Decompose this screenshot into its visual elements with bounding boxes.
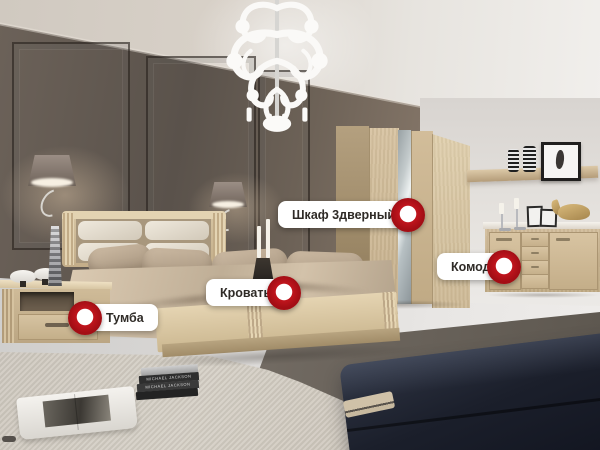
bowl-stand	[42, 279, 48, 285]
hotspot-marker-icon[interactable]	[391, 198, 425, 232]
candlestick	[514, 198, 526, 230]
dresser-handle	[556, 238, 570, 241]
candlestick-base	[514, 227, 526, 230]
floor-object	[2, 436, 16, 442]
art-figure	[555, 150, 565, 170]
dresser-drawer	[521, 274, 549, 289]
framed-art	[541, 142, 581, 181]
chandelier	[220, 0, 334, 146]
hotspot-wardrobe[interactable]: Шкаф 3дверный	[278, 201, 409, 228]
bowl-stand	[20, 281, 26, 287]
dresser-drawer	[521, 246, 549, 261]
hotspot-marker-icon[interactable]	[487, 250, 521, 284]
candlestick-stem	[501, 214, 503, 228]
dresser-drawer	[521, 232, 549, 247]
hotspot-marker-icon[interactable]	[267, 276, 301, 310]
candlestick-base	[499, 228, 511, 231]
floor-candle	[257, 226, 261, 258]
hotspot-nightstand[interactable]: Тумба	[84, 304, 158, 331]
hotspot-dresser[interactable]: Комод	[437, 253, 505, 280]
hotspot-label-text: Тумба	[106, 311, 144, 325]
hotspot-label-text: Кровать	[220, 286, 271, 300]
wardrobe-corner-door	[432, 130, 470, 308]
candlestick-stem	[516, 209, 518, 227]
nightstand-ribbed-edge	[2, 289, 14, 343]
dresser-handle	[531, 252, 539, 254]
headboard-cushion	[78, 221, 142, 240]
dresser-handle	[531, 266, 539, 268]
dresser-handle	[531, 238, 539, 240]
hotspot-label: Шкаф 3дверный	[278, 201, 409, 228]
dresser-door	[549, 232, 598, 290]
dresser-shadow	[486, 292, 600, 298]
hotspot-marker-icon[interactable]	[68, 301, 102, 335]
dresser-drawer	[521, 260, 549, 275]
nightstand-open-shelf	[20, 292, 74, 311]
striped-vase	[523, 146, 536, 172]
candle	[499, 203, 504, 214]
candle	[514, 198, 519, 209]
bedroom-product-photo: MICHAEL JACKSON MICHAEL JACKSON Шкаф 3дв…	[0, 0, 600, 450]
sconce-inner-glow	[212, 201, 244, 208]
candlestick	[499, 203, 511, 231]
headboard-cushion	[145, 221, 209, 240]
hotspot-label-text: Комод	[451, 260, 491, 274]
sconce-inner-glow	[31, 178, 73, 187]
floor-candle	[266, 219, 270, 258]
hotspot-label-text: Шкаф 3дверный	[292, 208, 395, 222]
hotspot-bed[interactable]: Кровать	[206, 279, 285, 306]
striped-vase	[508, 149, 519, 172]
headboard-ribbed-post	[63, 213, 74, 265]
nightstand-handle	[45, 323, 69, 327]
elephant-figurine	[558, 204, 590, 220]
dresser-handle	[496, 238, 512, 241]
